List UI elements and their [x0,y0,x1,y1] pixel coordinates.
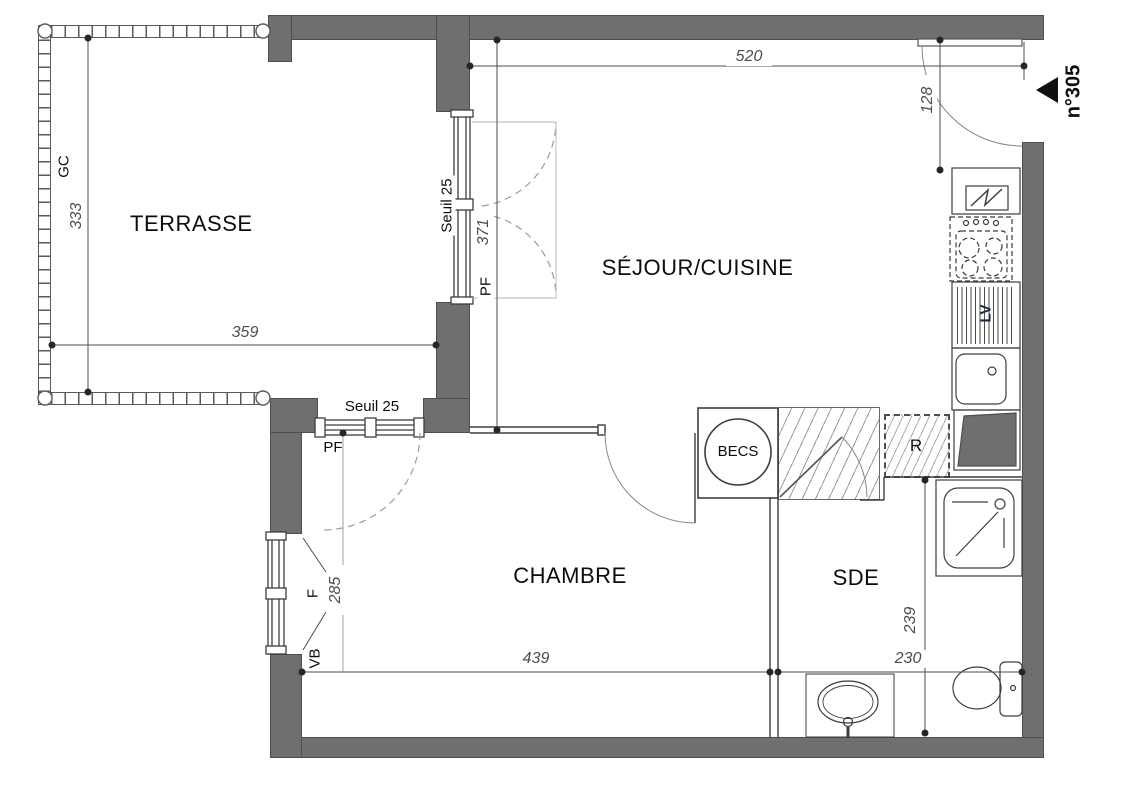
dim-chambre-width: 439 [513,650,559,668]
floor-plan: TERRASSE SÉJOUR/CUISINE CHAMBRE SDE BECS… [0,0,1128,800]
label-storage: R [901,436,931,456]
plan-linework [0,0,1128,800]
label-seuil-south: Seuil 25 [342,398,402,415]
dimension-dots [49,35,1028,737]
room-label-sde: SDE [830,565,882,591]
label-pf-south: PF [318,439,348,456]
dim-terrasse-width: 359 [222,324,268,342]
room-label-terrasse: TERRASSE [130,211,240,237]
label-vb: VB [307,644,324,674]
label-becs: BECS [708,443,768,460]
label-window-f: F [305,581,322,607]
dim-terrasse-depth: 333 [68,191,86,241]
label-pf-east: PF [478,272,495,302]
dim-sejour-depth: 371 [475,207,493,257]
dim-sde-depth: 239 [902,595,920,645]
dim-entry-recess: 128 [919,75,937,125]
label-guardrail: GC [56,152,73,182]
label-seuil-east: Seuil 25 [439,176,456,236]
unit-number: n°305 [1063,61,1086,123]
dim-sde-width: 230 [885,650,931,668]
entrance-arrow-icon [1036,77,1058,103]
dim-sejour-width: 520 [726,48,772,66]
room-label-sejour: SÉJOUR/CUISINE [600,255,795,281]
label-dishwasher: LV [978,299,995,329]
room-label-chambre: CHAMBRE [512,563,628,589]
dim-chambre-window: 285 [327,565,345,615]
dimension-lines [52,38,1024,733]
